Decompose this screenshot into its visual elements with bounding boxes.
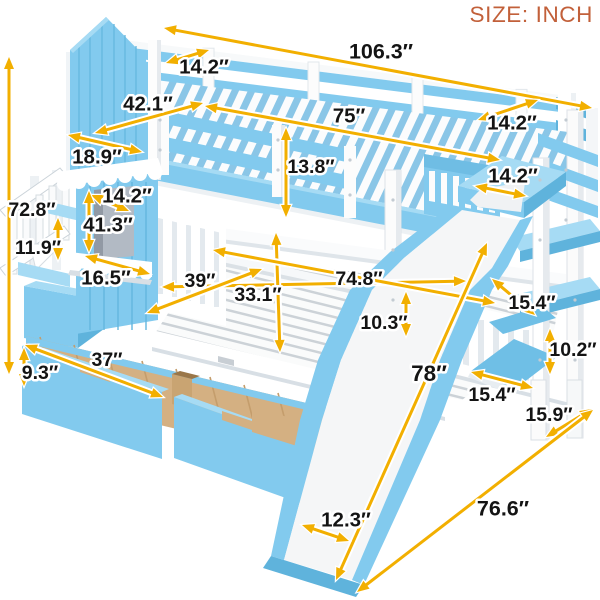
svg-text:33.1″: 33.1″: [234, 284, 281, 306]
svg-text:SIZE: INCH: SIZE: INCH: [469, 2, 593, 27]
svg-text:39″: 39″: [184, 270, 215, 292]
svg-text:16.5″: 16.5″: [81, 266, 131, 289]
svg-text:15.4″: 15.4″: [508, 292, 555, 314]
svg-text:13.8″: 13.8″: [287, 156, 334, 178]
svg-text:74.8″: 74.8″: [335, 268, 382, 290]
svg-text:9.3″: 9.3″: [22, 362, 58, 384]
svg-text:12.3″: 12.3″: [321, 508, 371, 531]
svg-text:106.3″: 106.3″: [349, 40, 413, 64]
svg-text:14.2″: 14.2″: [487, 111, 537, 134]
svg-text:41.3″: 41.3″: [83, 213, 133, 236]
svg-text:14.2″: 14.2″: [179, 55, 229, 78]
svg-text:10.3″: 10.3″: [360, 312, 407, 334]
svg-text:14.2″: 14.2″: [102, 184, 152, 207]
svg-text:15.9″: 15.9″: [525, 404, 572, 426]
svg-text:11.9″: 11.9″: [15, 237, 61, 259]
svg-text:14.2″: 14.2″: [488, 164, 538, 187]
svg-text:37″: 37″: [91, 349, 122, 371]
svg-text:15.4″: 15.4″: [468, 384, 515, 406]
svg-text:78″: 78″: [411, 361, 447, 386]
svg-text:76.6″: 76.6″: [477, 497, 529, 521]
svg-text:42.1″: 42.1″: [123, 92, 173, 115]
svg-text:18.9″: 18.9″: [72, 145, 122, 168]
svg-text:72.8″: 72.8″: [8, 199, 55, 221]
svg-text:75″: 75″: [333, 104, 366, 127]
svg-text:10.2″: 10.2″: [549, 339, 596, 361]
